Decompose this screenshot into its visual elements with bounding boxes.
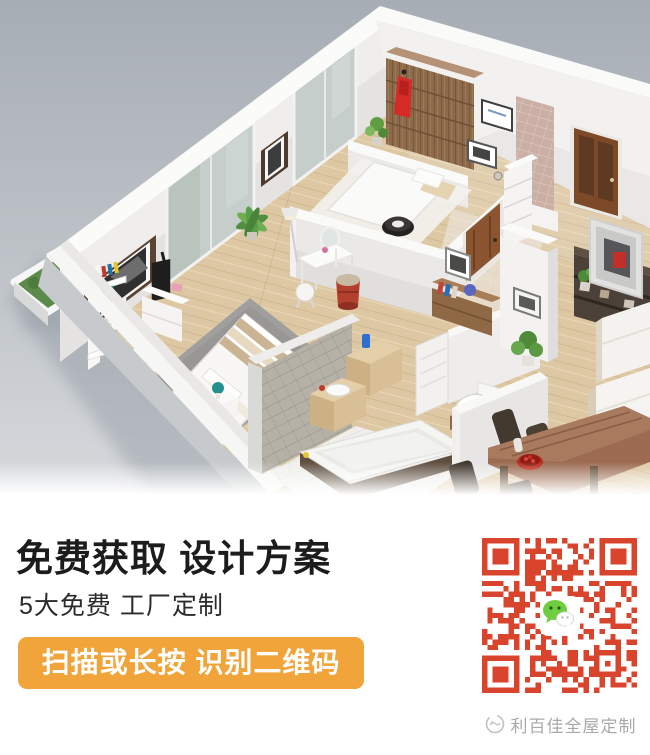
qr-code[interactable] [482, 538, 637, 693]
promo-poster: 免费获取 设计方案 5大免费 工厂定制 扫描或长按 识别二维码 [0, 0, 650, 755]
photo-bottom-fade [0, 462, 650, 495]
brand-name: 利百佳全屋定制 [511, 712, 637, 737]
cta-banner[interactable]: 扫描或长按 识别二维码 [18, 637, 364, 689]
brand-logo-icon [484, 713, 506, 735]
entry-door [570, 124, 622, 220]
heading: 免费获取 设计方案 [16, 528, 331, 582]
floorplan-render [0, 0, 650, 495]
wechat-icon [540, 596, 580, 636]
red-drum-stool [336, 274, 360, 310]
brand-footer: 利百佳全屋定制 [478, 710, 642, 738]
subheading: 5大免费 工厂定制 [19, 586, 224, 622]
